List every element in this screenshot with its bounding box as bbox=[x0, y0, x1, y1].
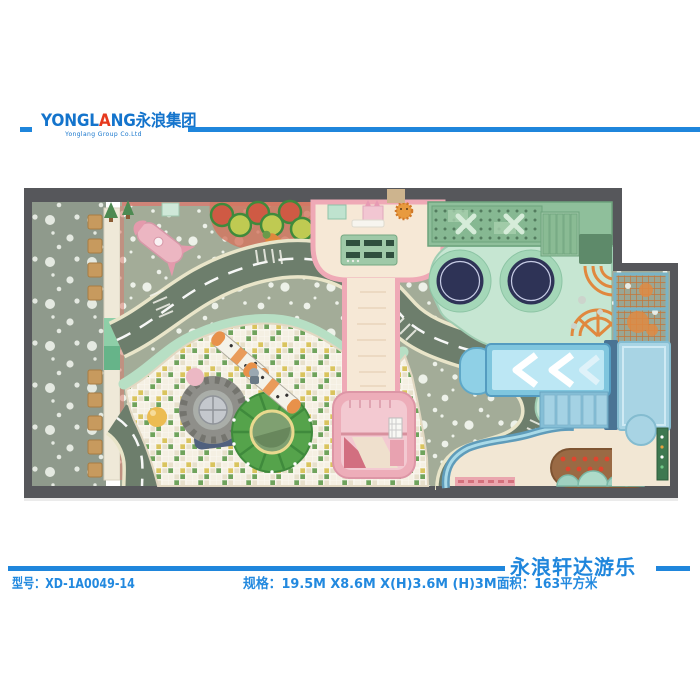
model-number: 型号：XD-1A0049-14 bbox=[12, 576, 135, 592]
platform-block bbox=[579, 234, 612, 264]
stairs bbox=[541, 212, 579, 256]
doorway bbox=[387, 189, 405, 203]
mint-box-toy bbox=[162, 203, 179, 216]
yellow-ball bbox=[147, 407, 167, 427]
footer-rule-short bbox=[656, 566, 690, 571]
pink-walkway bbox=[342, 278, 400, 396]
climb-net bbox=[389, 418, 402, 438]
pink-slide-tower bbox=[333, 392, 415, 478]
spec-dimensions: 规格：19.5M X8.6M X(H)3.6M (H)3M bbox=[243, 576, 497, 592]
toddler-area bbox=[313, 200, 443, 280]
garden-shelf bbox=[657, 428, 668, 480]
ball-highlight bbox=[150, 410, 156, 416]
wall-shadow bbox=[24, 498, 678, 501]
footer-rule-long bbox=[8, 566, 505, 571]
product-sheet: YONGLANG永浪集团 Yonglang Group Co.Ltd bbox=[0, 0, 700, 700]
floorplan-image bbox=[0, 0, 700, 700]
pink-mat-strip bbox=[455, 477, 515, 486]
wall-patch bbox=[122, 486, 162, 498]
area-value: 面积：163平方米 bbox=[497, 576, 597, 592]
pink-ball bbox=[186, 368, 204, 386]
mini-bench bbox=[352, 220, 384, 227]
interactive-table bbox=[341, 235, 397, 265]
slide-stairs bbox=[540, 392, 608, 428]
toy-lion bbox=[396, 203, 412, 219]
toy-box bbox=[328, 205, 346, 219]
footer-brand: 永浪轩达游乐 bbox=[510, 557, 636, 577]
